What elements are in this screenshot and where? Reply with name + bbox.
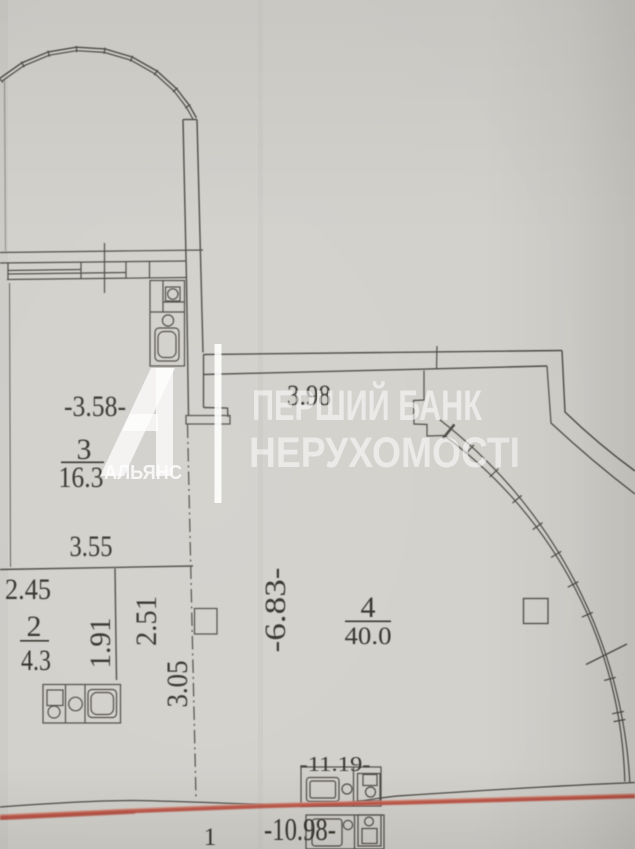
svg-text:-3.58-: -3.58- xyxy=(64,390,126,423)
svg-text:40.0: 40.0 xyxy=(345,623,392,650)
svg-text:16.3: 16.3 xyxy=(59,461,104,494)
svg-text:4: 4 xyxy=(361,591,376,624)
svg-text:3.55: 3.55 xyxy=(70,530,113,563)
svg-text:-10.98-: -10.98- xyxy=(264,811,336,847)
svg-text:2.51: 2.51 xyxy=(130,596,163,646)
svg-text:1: 1 xyxy=(204,824,217,849)
svg-text:-11.19-: -11.19- xyxy=(300,752,371,776)
svg-text:ПЕРШИЙ БАНК: ПЕРШИЙ БАНК xyxy=(252,381,483,430)
svg-text:2: 2 xyxy=(27,610,42,643)
svg-text:1.91: 1.91 xyxy=(84,618,117,669)
svg-text:АЛЬЯНС: АЛЬЯНС xyxy=(104,461,182,484)
svg-text:4.3: 4.3 xyxy=(21,644,51,677)
svg-text:3.05: 3.05 xyxy=(161,661,194,708)
svg-text:НЕРУХОМОСТІ: НЕРУХОМОСТІ xyxy=(249,429,520,477)
svg-text:-6.83-: -6.83- xyxy=(259,568,292,653)
svg-text:2.45: 2.45 xyxy=(5,573,51,606)
